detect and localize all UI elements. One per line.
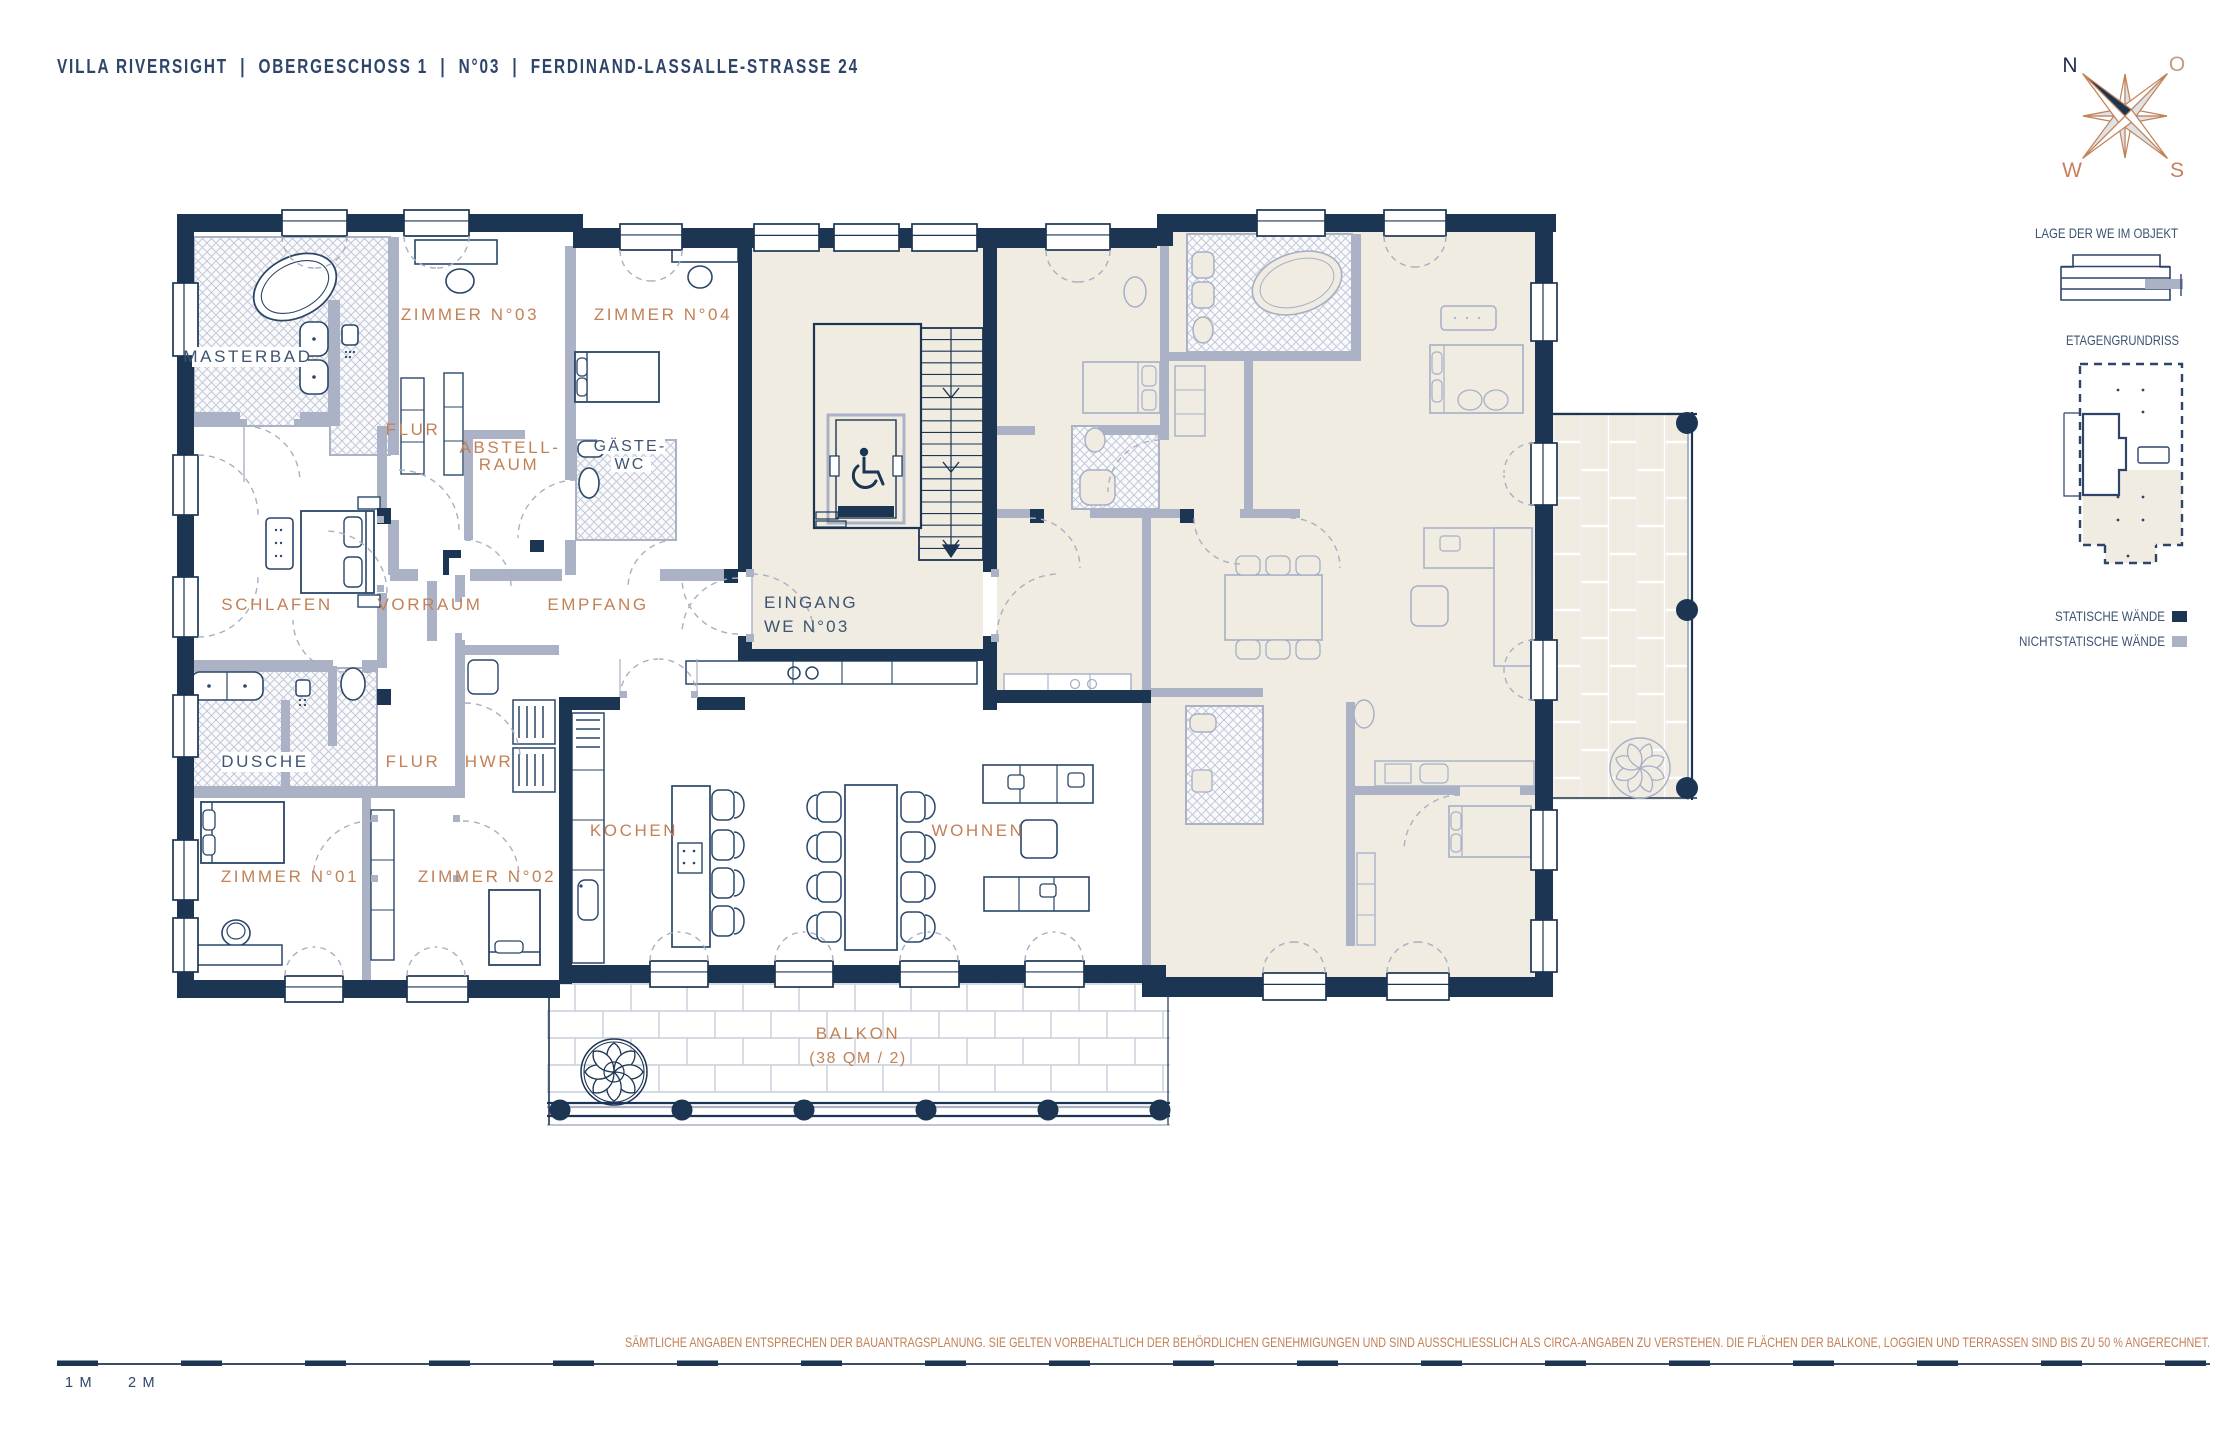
svg-text:DUSCHE: DUSCHE	[221, 752, 308, 771]
svg-text:N: N	[2062, 54, 2077, 77]
svg-text:FLUR: FLUR	[386, 752, 441, 771]
svg-text:SCHLAFEN: SCHLAFEN	[221, 595, 333, 614]
svg-text:ETAGENGRUNDRISS: ETAGENGRUNDRISS	[2066, 332, 2179, 348]
svg-text:WOHNEN: WOHNEN	[931, 821, 1024, 840]
svg-text:VILLA RIVERSIGHT | OBERGESCH: VILLA RIVERSIGHT | OBERGESCHOSS 1 | N°03…	[57, 56, 859, 78]
svg-text:SÄMTLICHE ANGABEN ENTSPRECHEN: SÄMTLICHE ANGABEN ENTSPRECHEN DER BAUANT…	[625, 1333, 2210, 1350]
svg-text:W: W	[2062, 159, 2082, 182]
svg-text:ZIMMER N°02: ZIMMER N°02	[418, 867, 556, 886]
svg-text:2 M: 2 M	[128, 1375, 156, 1391]
svg-text:GÄSTE-: GÄSTE-	[594, 437, 667, 455]
svg-text:RAUM: RAUM	[479, 455, 539, 474]
svg-text:VORRAUM: VORRAUM	[377, 595, 482, 614]
svg-text:FLUR: FLUR	[386, 420, 441, 439]
svg-text:(38 QM / 2): (38 QM / 2)	[809, 1050, 906, 1067]
svg-text:ZIMMER N°04: ZIMMER N°04	[594, 305, 732, 324]
svg-text:MASTERBAD: MASTERBAD	[183, 347, 312, 366]
svg-text:LAGE DER WE IM OBJEKT: LAGE DER WE IM OBJEKT	[2035, 225, 2178, 241]
svg-text:KOCHEN: KOCHEN	[590, 821, 678, 840]
svg-text:O: O	[2169, 53, 2185, 76]
svg-text:ZIMMER N°01: ZIMMER N°01	[221, 867, 359, 886]
svg-text:STATISCHE WÄNDE: STATISCHE WÄNDE	[2055, 608, 2165, 624]
svg-text:HWR: HWR	[465, 752, 513, 771]
svg-text:S: S	[2170, 159, 2184, 182]
svg-text:NICHTSTATISCHE WÄNDE: NICHTSTATISCHE WÄNDE	[2019, 633, 2165, 649]
svg-text:1 M: 1 M	[65, 1375, 93, 1391]
svg-text:EMPFANG: EMPFANG	[547, 595, 648, 614]
svg-text:WC: WC	[614, 456, 645, 473]
svg-text:BALKON: BALKON	[816, 1024, 901, 1043]
svg-text:ZIMMER N°03: ZIMMER N°03	[401, 305, 539, 324]
svg-text:EINGANG: EINGANG	[764, 593, 858, 612]
svg-text:WE N°03: WE N°03	[764, 617, 850, 636]
